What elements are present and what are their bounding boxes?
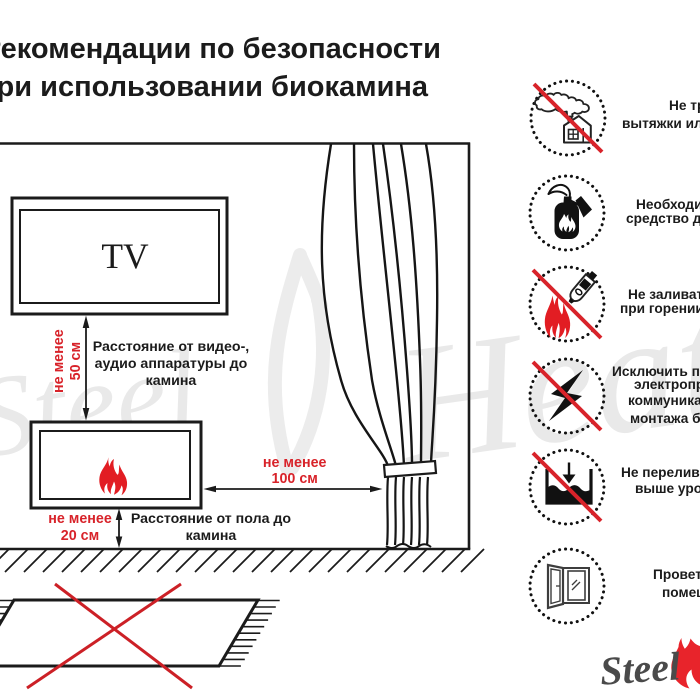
svg-text:TV: TV <box>101 236 149 276</box>
